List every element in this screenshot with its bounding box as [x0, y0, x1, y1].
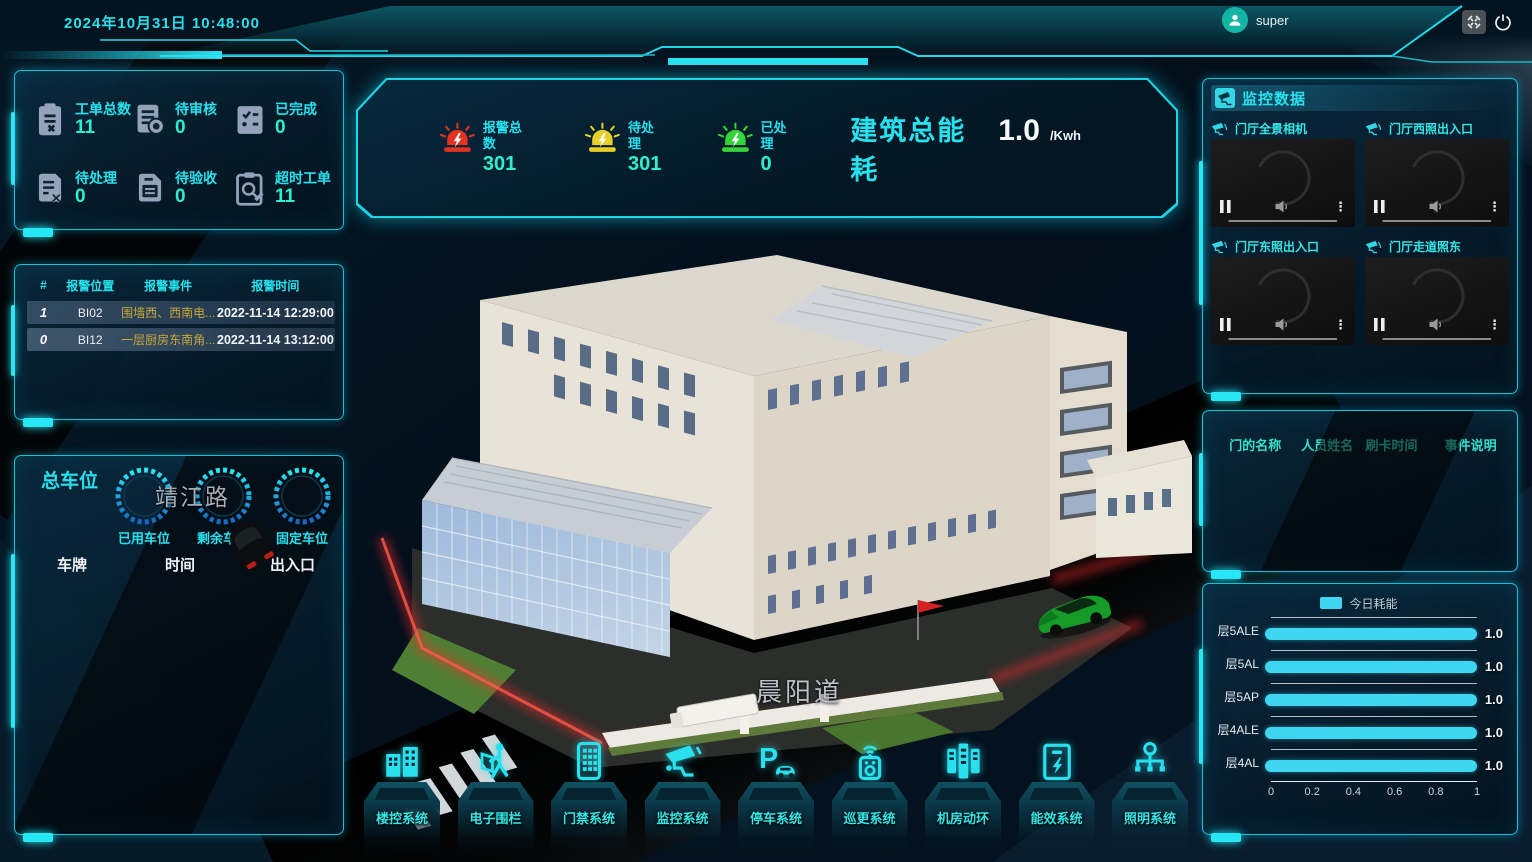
road-name-label: 晨阳道: [756, 672, 843, 709]
volume-icon[interactable]: [1276, 318, 1291, 331]
video-progress-bar[interactable]: [1228, 220, 1337, 222]
flag: [918, 600, 944, 613]
x-tick: 0.2: [1305, 786, 1320, 798]
system-label: 门禁系统: [545, 808, 633, 827]
black-car: [221, 514, 283, 578]
stat-value: 0: [761, 152, 799, 176]
alarm-time: 2022-11-14 12:29:00: [216, 306, 335, 320]
doc-reject-icon: [33, 171, 67, 207]
category-label: 层5AL: [1215, 655, 1265, 672]
video-player[interactable]: ⋮: [1365, 139, 1509, 227]
cctv-icon: [1211, 239, 1229, 254]
camera-name: 门厅走道照东: [1389, 238, 1461, 255]
pause-button[interactable]: [1374, 318, 1385, 331]
system-label: 照明系统: [1106, 808, 1194, 827]
x-tick: 0: [1268, 786, 1274, 798]
svg-text:P: P: [759, 743, 778, 775]
col-time: 时间: [165, 554, 195, 575]
video-progress-bar[interactable]: [1382, 338, 1491, 340]
stat-value: 0: [275, 117, 317, 139]
panel-title: 监控数据: [1242, 88, 1306, 109]
chart-row: 层5AP 1.0: [1215, 680, 1503, 713]
volume-icon[interactable]: [1430, 200, 1445, 213]
col-plate: 车牌: [57, 554, 87, 575]
bar: [1265, 628, 1477, 640]
energy-unit: /Kwh: [1050, 128, 1081, 143]
fullscreen-button[interactable]: [1462, 10, 1486, 34]
alarm-event: 围墙西、西南电...: [121, 304, 216, 321]
parking-table-header: 车牌 时间 出入口: [15, 554, 343, 576]
cctv-icon: [661, 740, 705, 782]
system-item-energy[interactable]: 能效系统: [1013, 738, 1101, 860]
workorder-stat-accept: 待验收0: [133, 156, 233, 221]
lighting-icon: [1129, 740, 1171, 782]
camera-tile[interactable]: 门厅东照出入口 ⋮: [1211, 235, 1355, 345]
chart-row: 层4AL 1.0: [1215, 746, 1503, 779]
volume-icon[interactable]: [1430, 318, 1445, 331]
x-tick: 1: [1474, 786, 1480, 798]
camera-name: 门厅东照出入口: [1235, 238, 1319, 255]
access-table-header: 门的名称 人员姓名 刷卡时间 事件说明: [1217, 435, 1507, 454]
alarm-pending-stat: 待处理301: [585, 120, 666, 175]
monitoring-header: 监控数据: [1211, 85, 1509, 111]
alarm-position: BI02: [60, 306, 121, 320]
stat-label: 待处理: [628, 120, 666, 151]
camera-name: 门厅全景相机: [1235, 120, 1307, 137]
alarm-summary-bar: 报警总数301 待处理301 已处理0: [356, 78, 1178, 218]
system-item-building-control[interactable]: 楼控系统: [358, 738, 446, 860]
system-item-server-room[interactable]: 机房动环: [919, 738, 1007, 860]
clipboard-icon: [33, 102, 67, 138]
volume-icon[interactable]: [1276, 200, 1291, 213]
workorder-stat-total: 工单总数11: [33, 87, 133, 152]
alarm-position: BI12: [60, 333, 121, 347]
header-decoration: [0, 0, 1532, 70]
alarm-table-panel: # 报警位置 报警事件 报警时间 1 BI02 围墙西、西南电... 2022-…: [14, 264, 344, 420]
energy-title: 建筑总能耗: [850, 109, 988, 187]
bar-value: 1.0: [1477, 659, 1503, 674]
col-event-desc: 事件说明: [1434, 435, 1507, 454]
col-time: 报警时间: [216, 277, 335, 294]
system-label: 监控系统: [639, 808, 727, 827]
pause-button[interactable]: [1220, 200, 1231, 213]
alarm-time: 2022-11-14 13:12:00: [216, 333, 335, 347]
stat-label: 已完成: [275, 101, 317, 117]
col-event: 报警事件: [121, 277, 216, 294]
system-shortcut-row: 楼控系统 电子围栏 门禁系统 监控系统 P 停车系统 巡更系统: [358, 738, 1194, 860]
alarm-handled-stat: 已处理0: [718, 120, 799, 175]
bar: [1265, 727, 1477, 739]
server-room-icon: [942, 740, 984, 782]
monitoring-panel: 监控数据 门厅全景相机 ⋮ 门厅西照出入口: [1202, 78, 1518, 394]
cctv-icon: [1365, 239, 1383, 254]
bar: [1265, 661, 1477, 673]
system-label: 巡更系统: [826, 808, 914, 827]
stat-label: 待验收: [175, 170, 217, 186]
alarm-total-stat: 报警总数301: [440, 120, 533, 175]
cctv-icon: [1211, 121, 1229, 136]
bar: [1265, 760, 1477, 772]
stat-value: 0: [75, 186, 117, 208]
x-tick: 0.4: [1346, 786, 1361, 798]
camera-tile[interactable]: 门厅西照出入口 ⋮: [1365, 117, 1509, 227]
x-tick: 0.6: [1387, 786, 1402, 798]
header: 2024年10月31日 10:48:00 super: [0, 0, 1532, 64]
avatar: [1222, 7, 1248, 33]
more-options-button[interactable]: ⋮: [1488, 317, 1501, 332]
legend-label: 今日耗能: [1349, 595, 1397, 612]
panel-title: 总车位: [41, 466, 98, 493]
energy-chart-panel: 今日耗能 层5ALE 1.0 层5AL 1.0 层5AP 1.0: [1202, 583, 1518, 835]
map-road-label: 靖江路: [155, 478, 230, 512]
alarm-index: 1: [27, 305, 60, 320]
more-options-button[interactable]: ⋮: [1334, 317, 1347, 332]
camera-grid: 门厅全景相机 ⋮ 门厅西照出入口: [1211, 117, 1509, 345]
bar-value: 1.0: [1477, 626, 1503, 641]
camera-header-icon: [1215, 88, 1235, 108]
doc-accept-icon: [133, 171, 167, 207]
pause-button[interactable]: [1374, 200, 1385, 213]
video-player[interactable]: ⋮: [1211, 257, 1355, 345]
dashboard-root: 晨阳道 2024年10月31日 10:48:00 super: [0, 0, 1532, 862]
camera-name: 门厅西照出入口: [1389, 120, 1473, 137]
system-label: 楼控系统: [358, 808, 446, 827]
stat-value: 301: [483, 152, 533, 176]
stat-label: 超时工单: [275, 170, 331, 186]
building-icon: [381, 740, 423, 782]
system-label: 能效系统: [1013, 808, 1101, 827]
stat-value: 11: [75, 117, 131, 139]
alarm-table-header: # 报警位置 报警事件 报警时间: [27, 273, 335, 297]
doc-audit-icon: [133, 102, 167, 138]
x-axis: 0 0.2 0.4 0.6 0.8 1: [1271, 781, 1477, 801]
more-options-button[interactable]: ⋮: [1488, 199, 1501, 214]
video-progress-bar[interactable]: [1382, 220, 1491, 222]
category-label: 层5AP: [1215, 688, 1265, 705]
stat-value: 0: [175, 117, 217, 139]
category-label: 层4AL: [1215, 754, 1265, 771]
power-icon: [1494, 13, 1512, 31]
legend-swatch: [1320, 597, 1342, 609]
system-label: 机房动环: [919, 808, 1007, 827]
chart-row: 层5AL 1.0: [1215, 647, 1503, 680]
parking-panel: 总车位 已用车位 剩余车位 固定车位 靖江路 车牌 时间 出入口: [14, 455, 344, 835]
siren-green-icon: [718, 122, 753, 154]
chart-row: 层5ALE 1.0: [1215, 614, 1503, 647]
workorder-stat-review: 待审核0: [133, 87, 233, 152]
energy-icon: [1036, 740, 1078, 782]
category-label: 层5ALE: [1215, 622, 1265, 639]
username-label: super: [1256, 13, 1289, 28]
stat-label: 已处理: [761, 120, 799, 151]
category-label: 层4ALE: [1215, 721, 1265, 738]
bar-value: 1.0: [1477, 725, 1503, 740]
system-item-parking[interactable]: P 停车系统: [732, 738, 820, 860]
stat-value: 0: [175, 186, 217, 208]
user-icon: [1227, 12, 1243, 28]
stat-label: 工单总数: [75, 101, 131, 117]
patrol-icon: [849, 740, 891, 782]
workorder-stat-done: 已完成0: [233, 87, 333, 152]
system-label: 停车系统: [732, 808, 820, 827]
video-progress-bar[interactable]: [1228, 338, 1337, 340]
x-tick: 0.8: [1428, 786, 1443, 798]
access-records-panel: 门的名称 人员姓名 刷卡时间 事件说明: [1202, 410, 1518, 572]
system-item-electronic-fence[interactable]: 电子围栏: [452, 738, 540, 860]
stat-label: 待处理: [75, 170, 117, 186]
door-access-icon: [568, 740, 610, 782]
bar-value: 1.0: [1477, 758, 1503, 773]
energy-total: 建筑总能耗 1.0 /Kwh: [850, 109, 1081, 187]
bar-value: 1.0: [1477, 692, 1503, 707]
stat-label: 待审核: [175, 101, 217, 117]
col-position: 报警位置: [60, 277, 121, 294]
video-player[interactable]: ⋮: [1365, 257, 1509, 345]
gauge-label-used: 已用车位: [99, 528, 189, 547]
bar: [1265, 694, 1477, 706]
col-person-name: 人员姓名: [1294, 435, 1361, 454]
alarm-event: 一层厨房东南角...: [121, 331, 216, 348]
cctv-icon: [1365, 121, 1383, 136]
table-row[interactable]: 0 BI12 一层厨房东南角... 2022-11-14 13:12:00: [27, 328, 335, 351]
col-door-name: 门的名称: [1217, 435, 1294, 454]
camera-tile[interactable]: 门厅全景相机 ⋮: [1211, 117, 1355, 227]
energy-value: 1.0: [998, 114, 1040, 148]
clipboard-search-icon: [233, 171, 267, 207]
chart-legend: 今日耗能: [1215, 594, 1503, 612]
system-item-door-access[interactable]: 门禁系统: [545, 738, 633, 860]
fullscreen-icon: [1467, 15, 1481, 29]
siren-red-icon: [440, 122, 475, 154]
system-item-lighting[interactable]: 照明系统: [1106, 738, 1194, 860]
fence-icon: [475, 740, 517, 782]
workorder-panel: 工单总数11 待审核0 已完成0 待处理0 待验收0 超时工单11: [14, 70, 344, 230]
workorder-stat-overtime: 超时工单11: [233, 156, 333, 221]
camera-tile[interactable]: 门厅走道照东 ⋮: [1365, 235, 1509, 345]
annex-building: [1087, 440, 1192, 558]
more-options-button[interactable]: ⋮: [1334, 199, 1347, 214]
parking-icon: P: [754, 740, 798, 782]
logout-button[interactable]: [1491, 10, 1515, 34]
bar-chart: 层5ALE 1.0 层5AL 1.0 层5AP 1.0 层4ALE 1.0: [1215, 614, 1503, 779]
table-row[interactable]: 1 BI02 围墙西、西南电... 2022-11-14 12:29:00: [27, 301, 335, 324]
user-chip[interactable]: super: [1222, 7, 1289, 33]
stat-label: 报警总数: [483, 120, 533, 151]
alarm-index: 0: [27, 332, 60, 347]
col-index: #: [27, 278, 60, 292]
stat-value: 301: [628, 152, 666, 176]
system-item-patrol[interactable]: 巡更系统: [826, 738, 914, 860]
workorder-stat-pending: 待处理0: [33, 156, 133, 221]
video-player[interactable]: ⋮: [1211, 139, 1355, 227]
siren-yellow-icon: [585, 122, 620, 154]
system-label: 电子围栏: [452, 808, 540, 827]
chart-row: 层4ALE 1.0: [1215, 713, 1503, 746]
pause-button[interactable]: [1220, 318, 1231, 331]
checklist-icon: [233, 102, 267, 138]
system-item-monitoring[interactable]: 监控系统: [639, 738, 727, 860]
col-swipe-time: 刷卡时间: [1361, 435, 1423, 454]
datetime-display: 2024年10月31日 10:48:00: [64, 12, 260, 33]
stat-value: 11: [275, 186, 331, 208]
